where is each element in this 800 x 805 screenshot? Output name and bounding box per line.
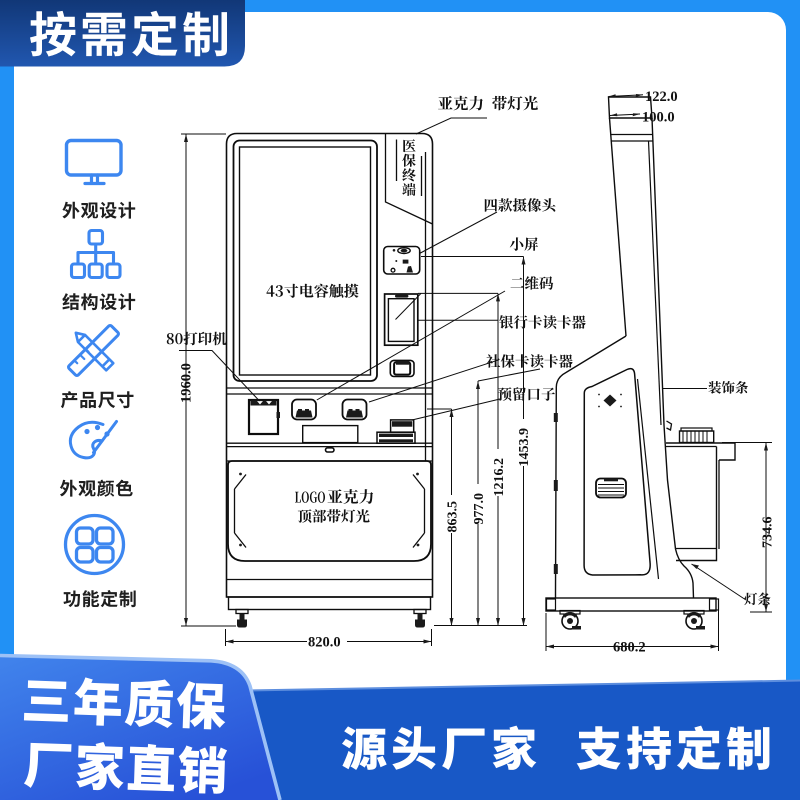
svg-text:122.0: 122.0 xyxy=(645,89,678,105)
svg-text:977.0: 977.0 xyxy=(472,493,487,525)
svg-text:1960.0: 1960.0 xyxy=(179,363,195,403)
svg-text:734.6: 734.6 xyxy=(761,517,776,549)
svg-text:1216.2: 1216.2 xyxy=(492,458,507,497)
svg-text:680.2: 680.2 xyxy=(613,640,646,656)
svg-text:820.0: 820.0 xyxy=(308,635,341,651)
svg-text:1453.9: 1453.9 xyxy=(517,428,532,467)
svg-text:863.5: 863.5 xyxy=(446,501,461,533)
svg-text:100.0: 100.0 xyxy=(642,110,675,126)
